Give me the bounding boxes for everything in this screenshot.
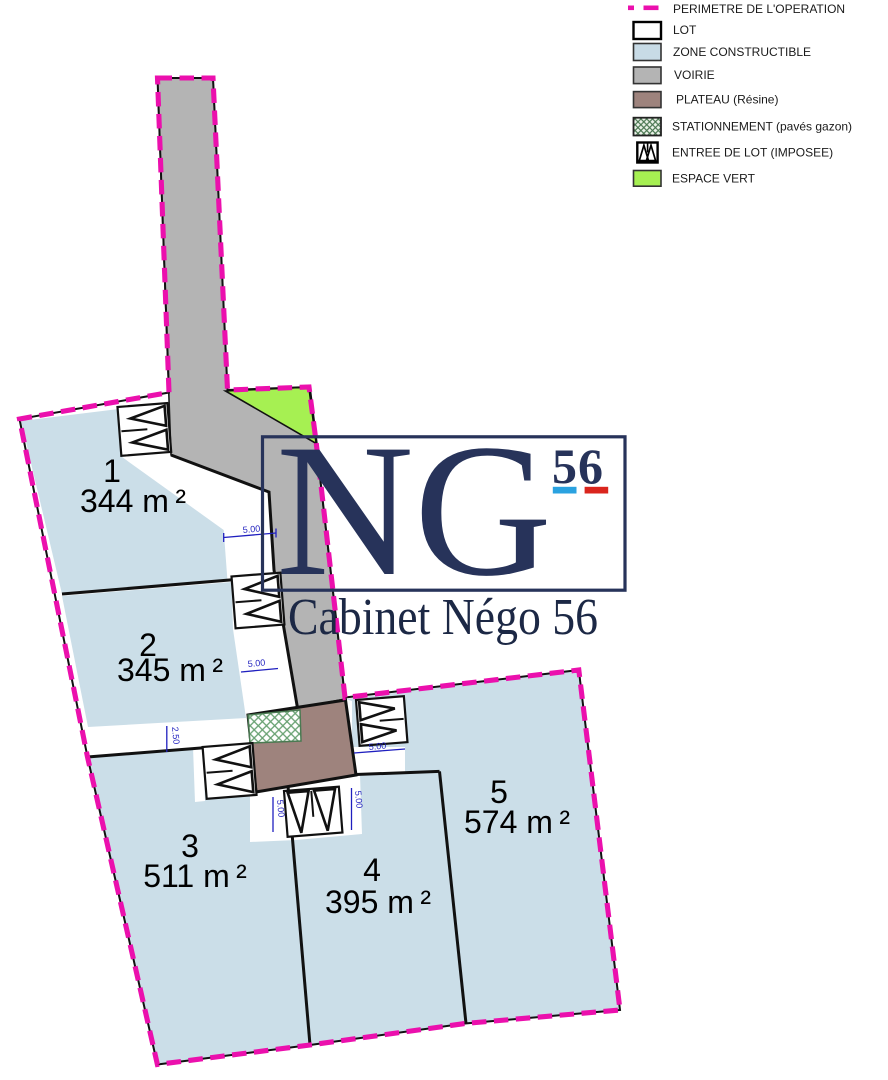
svg-text:STATIONNEMENT (pavés gazon): STATIONNEMENT (pavés gazon) — [672, 120, 852, 134]
svg-text:5.00: 5.00 — [275, 799, 286, 817]
svg-text:5.00: 5.00 — [368, 741, 386, 752]
svg-text:574 m ²: 574 m ² — [464, 804, 570, 840]
svg-text:Cabinet Négo 56: Cabinet Négo 56 — [288, 589, 598, 646]
svg-text:345 m ²: 345 m ² — [117, 652, 223, 688]
svg-text:4: 4 — [363, 852, 381, 888]
svg-text:56: 56 — [552, 438, 604, 494]
svg-text:PERIMETRE DE L'OPERATION: PERIMETRE DE L'OPERATION — [673, 2, 845, 16]
svg-text:5.00: 5.00 — [353, 790, 364, 808]
svg-text:395 m ²: 395 m ² — [325, 884, 431, 920]
svg-text:ESPACE VERT: ESPACE VERT — [672, 172, 756, 186]
svg-text:VOIRIE: VOIRIE — [674, 68, 715, 82]
svg-text:2.50: 2.50 — [170, 726, 181, 744]
svg-text:5.00: 5.00 — [242, 524, 260, 535]
svg-text:LOT: LOT — [673, 23, 697, 37]
svg-text:ZONE CONSTRUCTIBLE: ZONE CONSTRUCTIBLE — [673, 45, 811, 59]
svg-text:PLATEAU (Résine): PLATEAU (Résine) — [676, 93, 778, 107]
svg-text:344 m ²: 344 m ² — [80, 483, 186, 519]
svg-text:NG: NG — [276, 406, 552, 616]
svg-text:511 m ²: 511 m ² — [143, 858, 247, 894]
svg-text:5.00: 5.00 — [247, 658, 265, 669]
svg-text:ENTREE DE LOT (IMPOSEE): ENTREE DE LOT (IMPOSEE) — [672, 146, 833, 160]
